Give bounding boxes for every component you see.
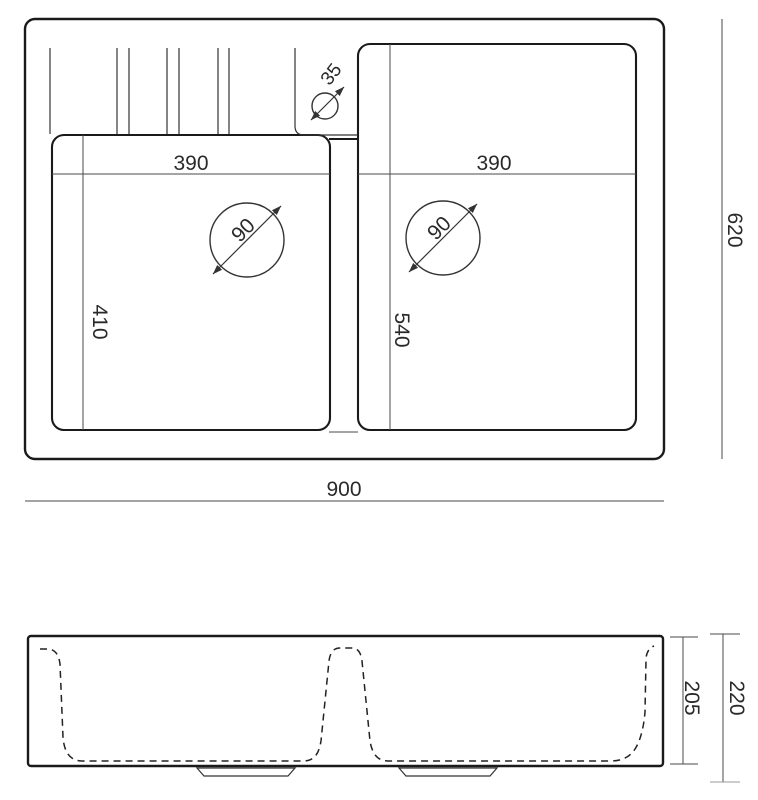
faucet-deck-notch-outline (295, 48, 358, 135)
front-view: 205 220 (28, 634, 748, 782)
sink-technical-drawing: 35 90 90 390 390 410 540 620 900 (0, 0, 758, 800)
label-right-drain-diameter: 90 (423, 212, 456, 245)
right-drain-fitting (399, 768, 497, 776)
left-drain-fitting (197, 768, 295, 776)
label-left-bowl-depth: 410 (88, 304, 111, 339)
label-front-inner-depth: 205 (680, 680, 703, 715)
left-bowl-outline (52, 135, 330, 430)
drawing-canvas: 35 90 90 390 390 410 540 620 900 (0, 0, 758, 800)
drainer-grooves (50, 48, 229, 134)
label-faucet-hole-diameter: 35 (317, 60, 347, 90)
label-left-drain-diameter: 90 (227, 214, 260, 247)
top-view: 35 90 90 390 390 410 540 620 900 (25, 19, 746, 501)
label-overall-width: 900 (326, 478, 361, 501)
label-left-bowl-width: 390 (173, 152, 208, 175)
label-overall-depth: 620 (723, 212, 746, 247)
right-bowl-outline (358, 44, 636, 430)
hidden-bowl-profile-dashed (40, 646, 654, 761)
label-right-bowl-width: 390 (476, 152, 511, 175)
front-body-outline (28, 636, 663, 766)
sink-outer-rim-outline (25, 19, 664, 459)
label-right-bowl-depth: 540 (390, 312, 413, 347)
faucet-diameter-callout-arrow (311, 87, 344, 120)
label-front-overall-height: 220 (725, 680, 748, 715)
